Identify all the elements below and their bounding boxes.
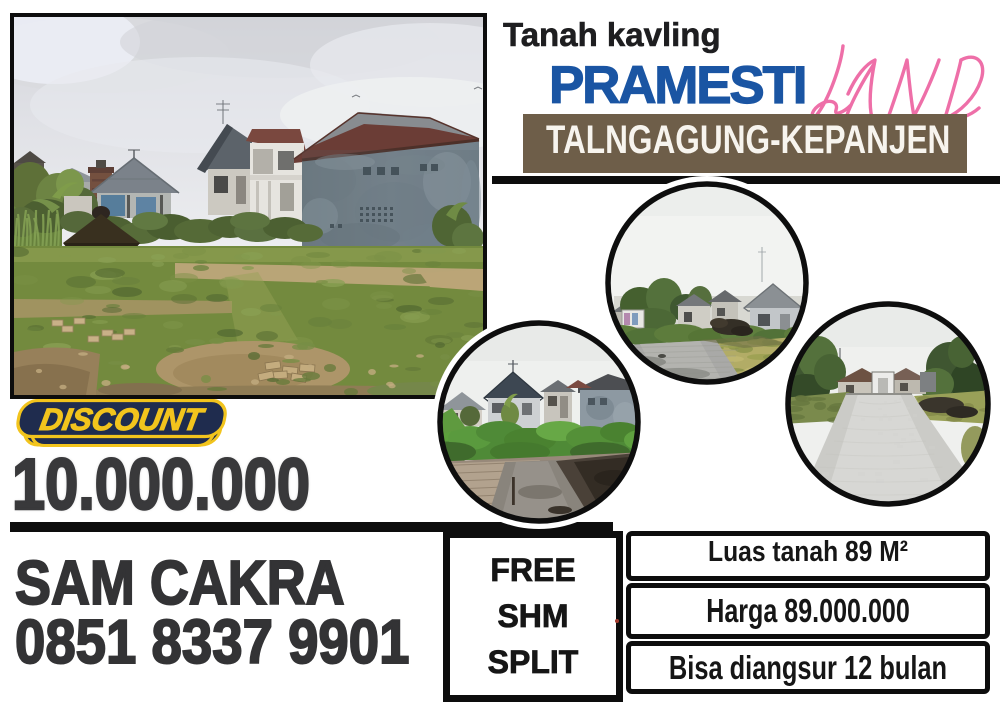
- svg-text:DISCOUNT: DISCOUNT: [37, 402, 208, 437]
